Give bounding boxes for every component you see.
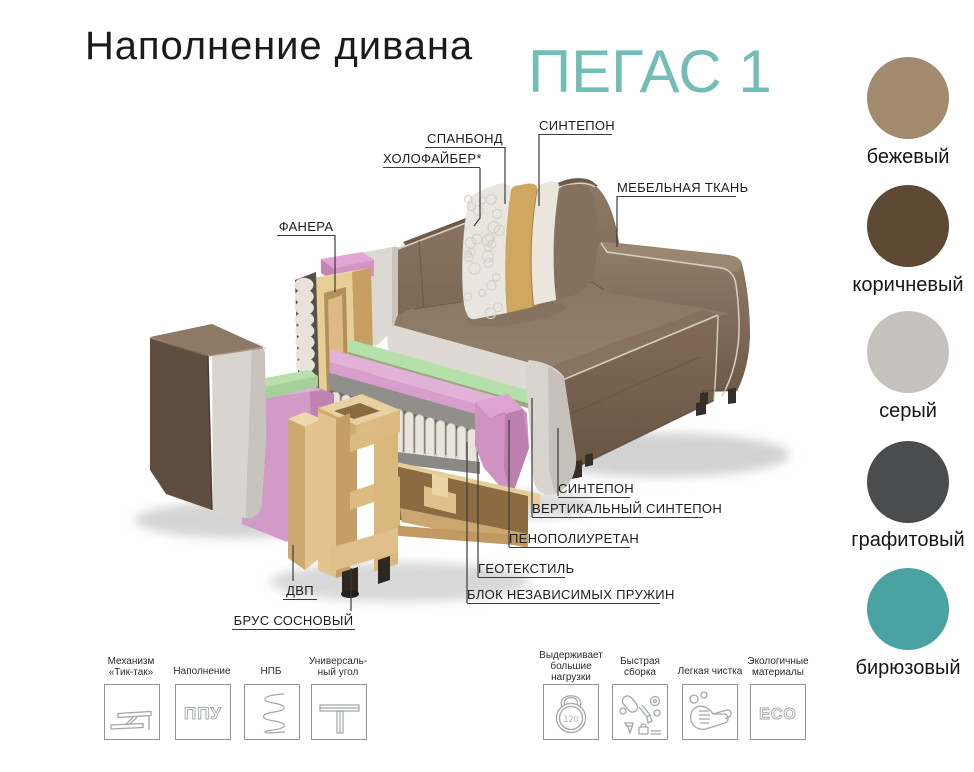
svg-text:120: 120 <box>563 714 578 724</box>
svg-text:ECO: ECO <box>759 706 797 723</box>
svg-text:ППУ: ППУ <box>184 704 222 723</box>
